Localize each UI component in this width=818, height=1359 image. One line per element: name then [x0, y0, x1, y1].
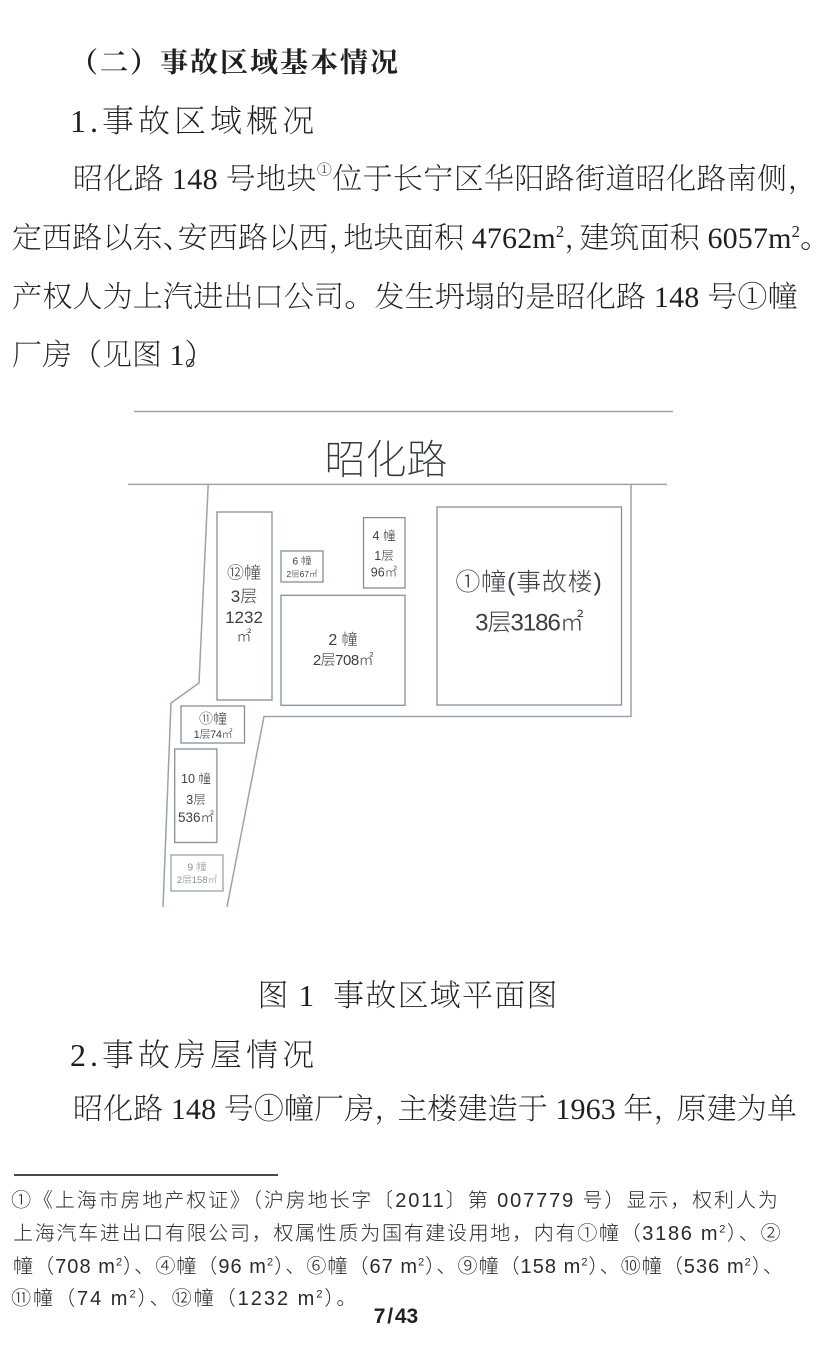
- svg-text:①幢(事故楼): ①幢(事故楼): [455, 569, 602, 597]
- svg-text:9 幢: 9 幢: [187, 861, 206, 874]
- svg-text:3层: 3层: [231, 587, 257, 606]
- svg-text:2层158㎡: 2层158㎡: [177, 874, 218, 886]
- svg-text:2层67㎡: 2层67㎡: [286, 569, 318, 579]
- svg-text:昭化路: 昭化路: [325, 437, 448, 483]
- svg-text:2 幢: 2 幢: [328, 631, 357, 649]
- svg-text:4 幢: 4 幢: [373, 529, 396, 543]
- svg-text:1层: 1层: [374, 549, 393, 563]
- svg-text:536㎡: 536㎡: [178, 810, 215, 825]
- svg-text:2层708㎡: 2层708㎡: [313, 652, 374, 669]
- svg-text:⑪幢: ⑪幢: [199, 711, 227, 727]
- svg-text:1232: 1232: [225, 608, 263, 627]
- svg-text:3层: 3层: [186, 793, 205, 807]
- svg-text:1层74㎡: 1层74㎡: [194, 728, 233, 741]
- svg-text:⑫幢: ⑫幢: [227, 564, 261, 583]
- svg-text:10 幢: 10 幢: [181, 772, 211, 786]
- svg-text:㎡: ㎡: [236, 629, 251, 646]
- svg-text:6 幢: 6 幢: [292, 555, 311, 568]
- svg-text:3层3186㎡: 3层3186㎡: [475, 610, 584, 637]
- svg-text:96㎡: 96㎡: [371, 566, 398, 580]
